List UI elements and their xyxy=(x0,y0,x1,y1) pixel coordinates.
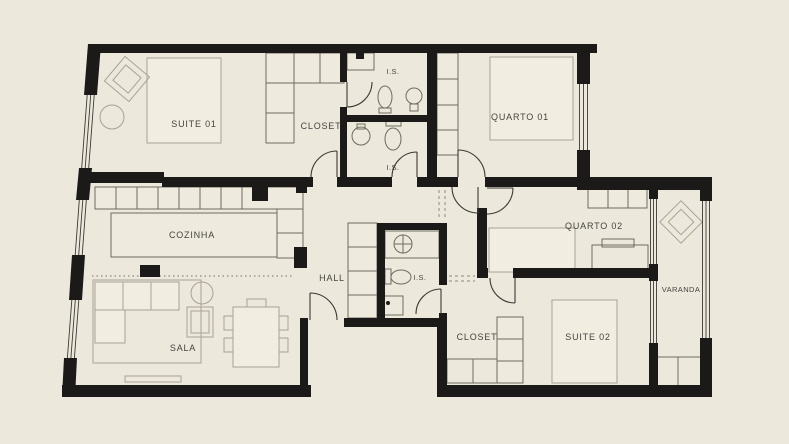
bed-suite01 xyxy=(147,58,221,143)
dining-table-sala xyxy=(233,307,279,367)
closet02-shelving xyxy=(447,317,523,383)
side-table-suite01 xyxy=(100,105,124,129)
room-label-closet01: CLOSET xyxy=(301,121,342,131)
armchair-suite01 xyxy=(104,56,149,101)
wardrobe-quarto01 xyxy=(437,53,458,155)
sofa-chaise xyxy=(95,310,125,343)
window-quarto01-right xyxy=(580,84,588,150)
sink-is2 xyxy=(352,124,370,145)
room-label-cozinha: COZINHA xyxy=(169,230,215,240)
room-label-suite02: SUITE 02 xyxy=(565,332,610,342)
sofa-sala xyxy=(95,282,179,310)
room-label-sala: SALA xyxy=(170,343,196,353)
door-corridor xyxy=(452,187,478,213)
tv-console-sala xyxy=(125,376,181,382)
floor-plan-canvas: SUITE 01 CLOSET I.S. I.S. QUARTO 01 COZI… xyxy=(0,0,789,444)
sink-is1 xyxy=(406,88,422,111)
toilet-is3 xyxy=(385,269,411,284)
shower-is3 xyxy=(383,296,403,315)
room-label-is1: I.S. xyxy=(387,67,400,76)
door-is3 xyxy=(416,289,441,314)
room-label-quarto02: QUARTO 02 xyxy=(565,221,623,231)
door-closet02 xyxy=(490,278,515,303)
room-label-varanda: VARANDA xyxy=(662,285,701,294)
door-quarto01 xyxy=(458,150,485,177)
desk-quarto02 xyxy=(592,239,648,272)
toilet-is1 xyxy=(378,86,392,113)
shower-is1 xyxy=(347,53,374,70)
varanda-partition-lines xyxy=(658,357,700,385)
shower-head-icon xyxy=(356,53,364,59)
vanity-is3 xyxy=(385,231,439,258)
room-label-is2: I.S. xyxy=(387,163,400,172)
bed-quarto01 xyxy=(490,57,573,140)
hall-cabinets xyxy=(348,223,377,318)
door-entrance xyxy=(310,293,337,320)
floor-plan: SUITE 01 CLOSET I.S. I.S. QUARTO 01 COZI… xyxy=(0,0,789,444)
room-label-hall: HALL xyxy=(319,273,345,283)
round-table-sala xyxy=(191,282,213,304)
door-suite01 xyxy=(311,151,337,177)
door-is1 xyxy=(347,82,372,107)
room-label-closet02: CLOSET xyxy=(457,332,498,342)
chair-varanda xyxy=(660,201,702,243)
door-quarto02 xyxy=(487,188,513,214)
window-varanda-right xyxy=(703,201,710,338)
window-left-slanted xyxy=(67,95,94,358)
room-label-suite01: SUITE 01 xyxy=(171,119,216,129)
bed-quarto02 xyxy=(489,228,575,272)
room-label-is3: I.S. xyxy=(414,273,427,282)
toilet-is2 xyxy=(385,120,401,150)
armchair-sala-seat xyxy=(191,311,209,333)
room-label-quarto01: QUARTO 01 xyxy=(491,112,549,122)
